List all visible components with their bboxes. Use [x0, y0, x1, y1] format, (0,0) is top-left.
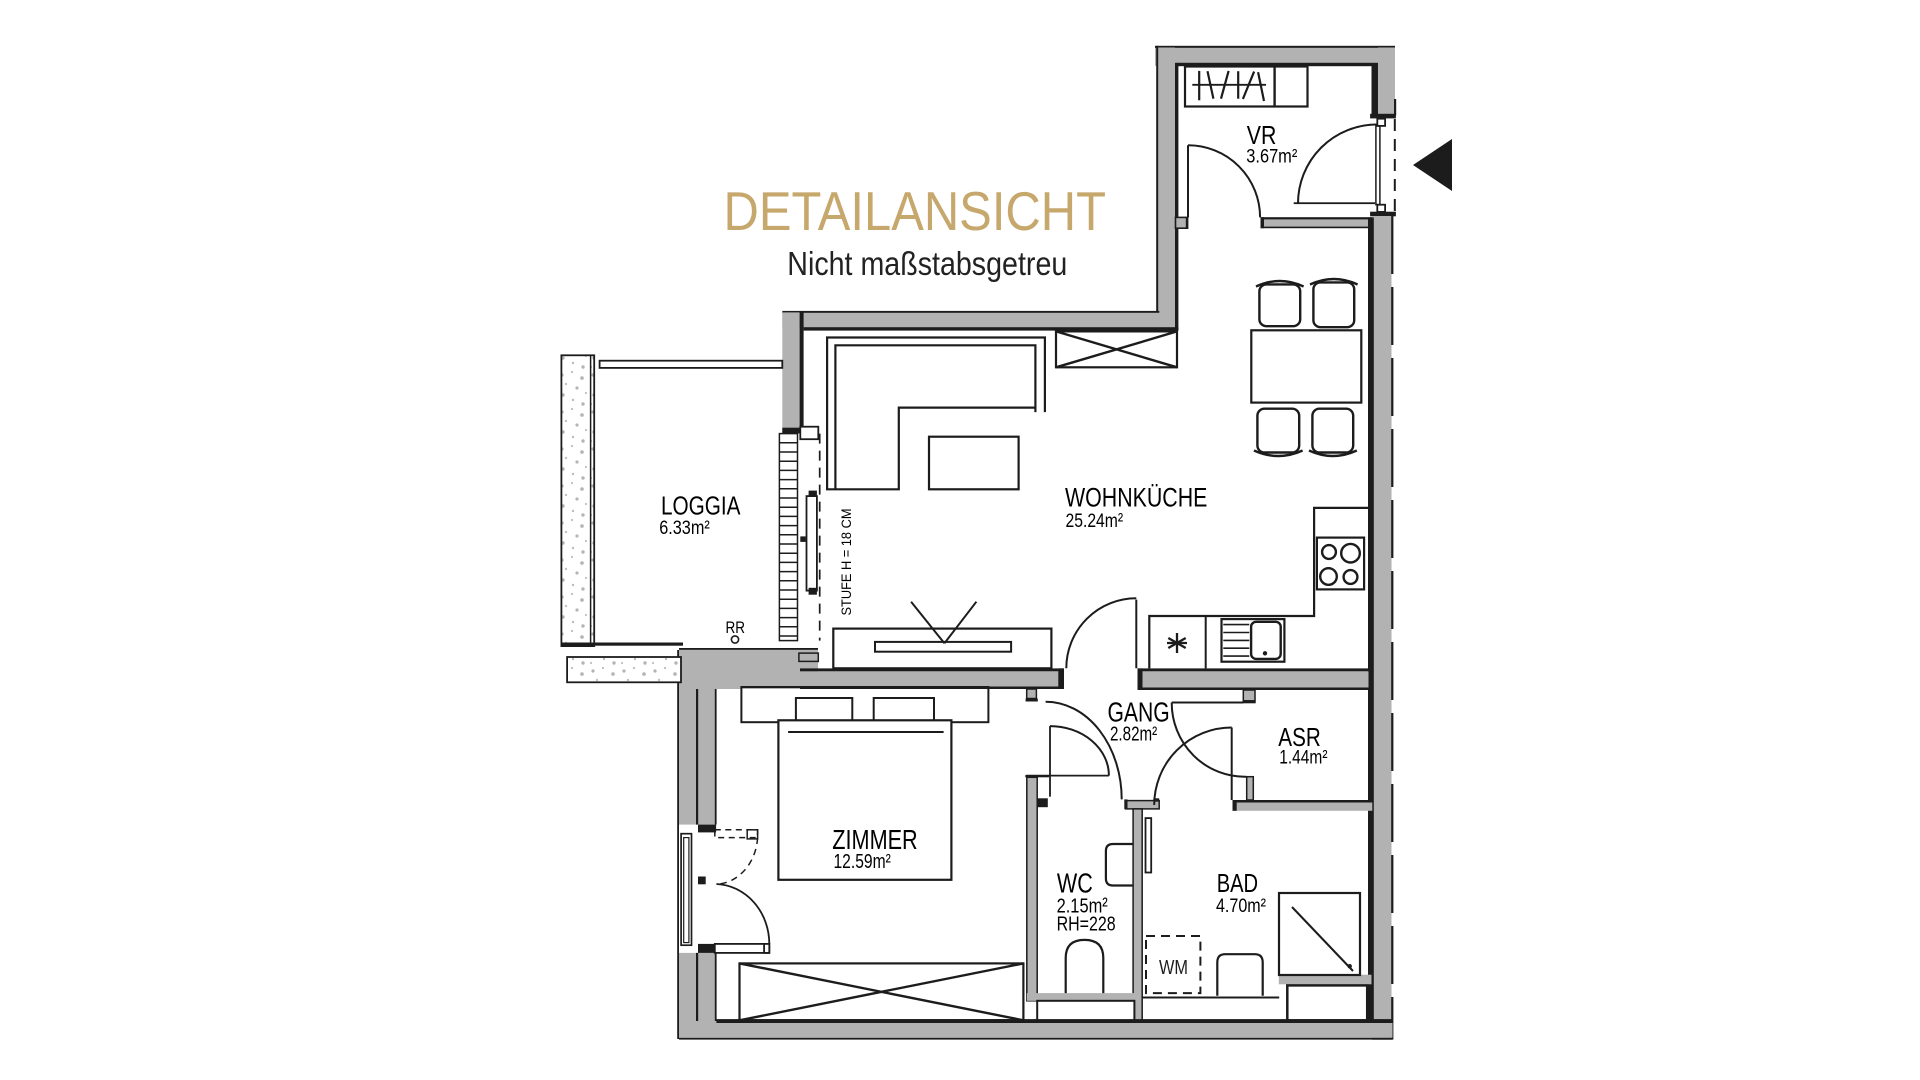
- svg-text:3.67m²: 3.67m²: [1246, 146, 1297, 167]
- svg-text:RR: RR: [726, 619, 746, 637]
- svg-text:12.59m²: 12.59m²: [834, 851, 891, 873]
- svg-text:6.33m²: 6.33m²: [659, 517, 710, 539]
- svg-text:1.44m²: 1.44m²: [1279, 747, 1327, 768]
- svg-text:STUFE H = 18 CM: STUFE H = 18 CM: [839, 509, 854, 616]
- svg-text:DETAILANSICHT: DETAILANSICHT: [724, 181, 1107, 242]
- svg-text:WOHNKÜCHE: WOHNKÜCHE: [1065, 483, 1207, 513]
- svg-text:RH=228: RH=228: [1057, 913, 1116, 936]
- svg-text:LOGGIA: LOGGIA: [661, 490, 741, 520]
- svg-text:BAD: BAD: [1217, 868, 1258, 898]
- svg-text:WM: WM: [1159, 957, 1188, 979]
- svg-text:25.24m²: 25.24m²: [1066, 510, 1124, 532]
- svg-text:2.82m²: 2.82m²: [1110, 724, 1157, 746]
- svg-text:4.70m²: 4.70m²: [1216, 895, 1266, 917]
- svg-text:Nicht maßstabsgetreu: Nicht maßstabsgetreu: [787, 245, 1067, 282]
